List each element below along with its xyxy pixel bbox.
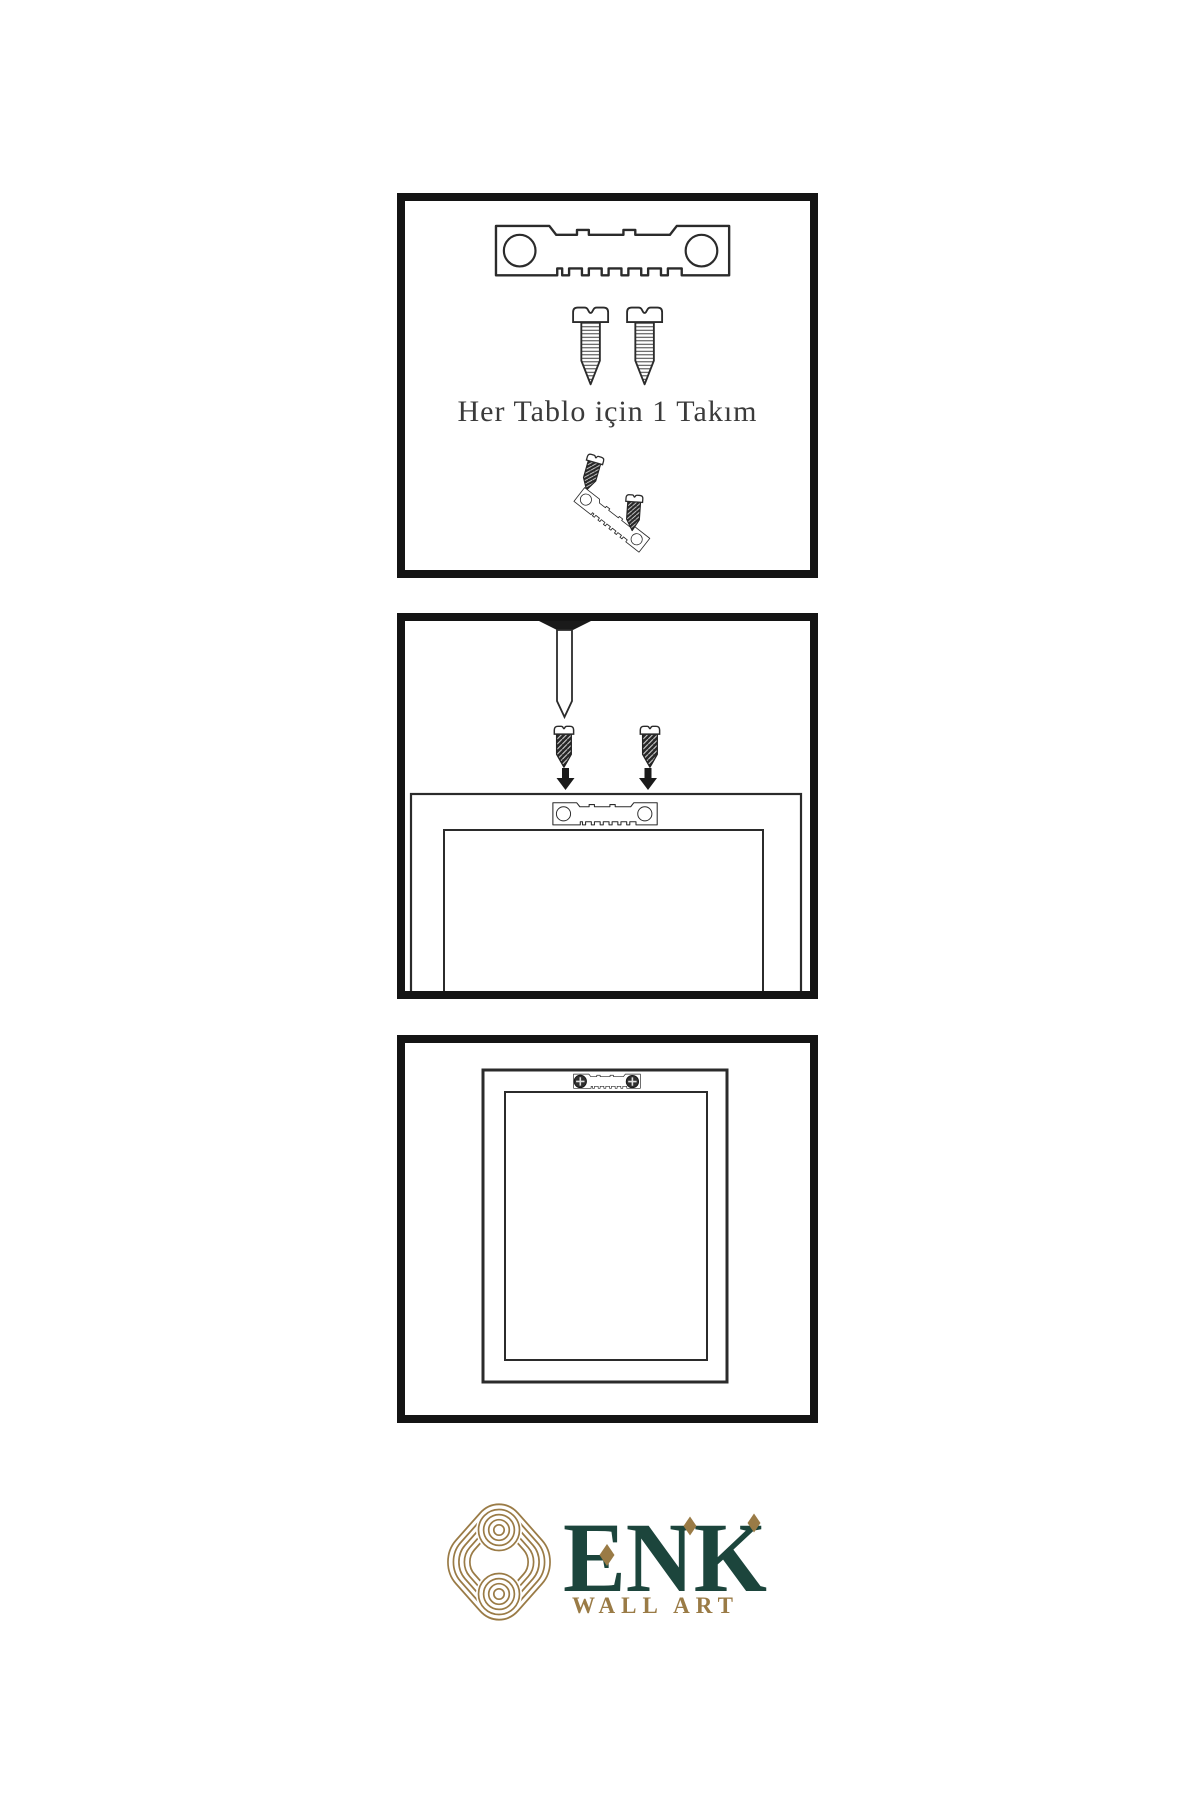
arrow-down-icon [557,768,575,790]
phillips-screw-head-icon [626,1075,638,1087]
step-1-illustration [405,201,810,570]
sawtooth-hanger-icon [496,226,729,275]
phillips-screw-head-icon [574,1075,586,1087]
knot-icon [437,1492,561,1633]
screw-into-hanger-assembly-icon [574,453,650,552]
step-3-illustration [405,1043,810,1415]
step-2-panel [397,613,818,999]
sawtooth-hanger-icon [553,803,657,825]
screw-icon [627,308,662,385]
dark-screw-icon [640,726,659,767]
dark-screw-icon [578,453,604,492]
caption: Her Tablo için 1 Takım [405,395,810,429]
step-1-panel: Her Tablo için 1 Takım [397,193,818,578]
step-2-illustration [405,621,810,991]
nail-icon [539,621,591,717]
frame-back-icon [483,1070,727,1382]
frame-back-icon [411,794,801,991]
dark-screw-icon [554,726,573,767]
step-3-panel [397,1035,818,1423]
brand-logo: ENK WALL ART [437,1490,777,1670]
screw-icon [573,308,608,385]
arrow-down-icon [639,768,657,790]
